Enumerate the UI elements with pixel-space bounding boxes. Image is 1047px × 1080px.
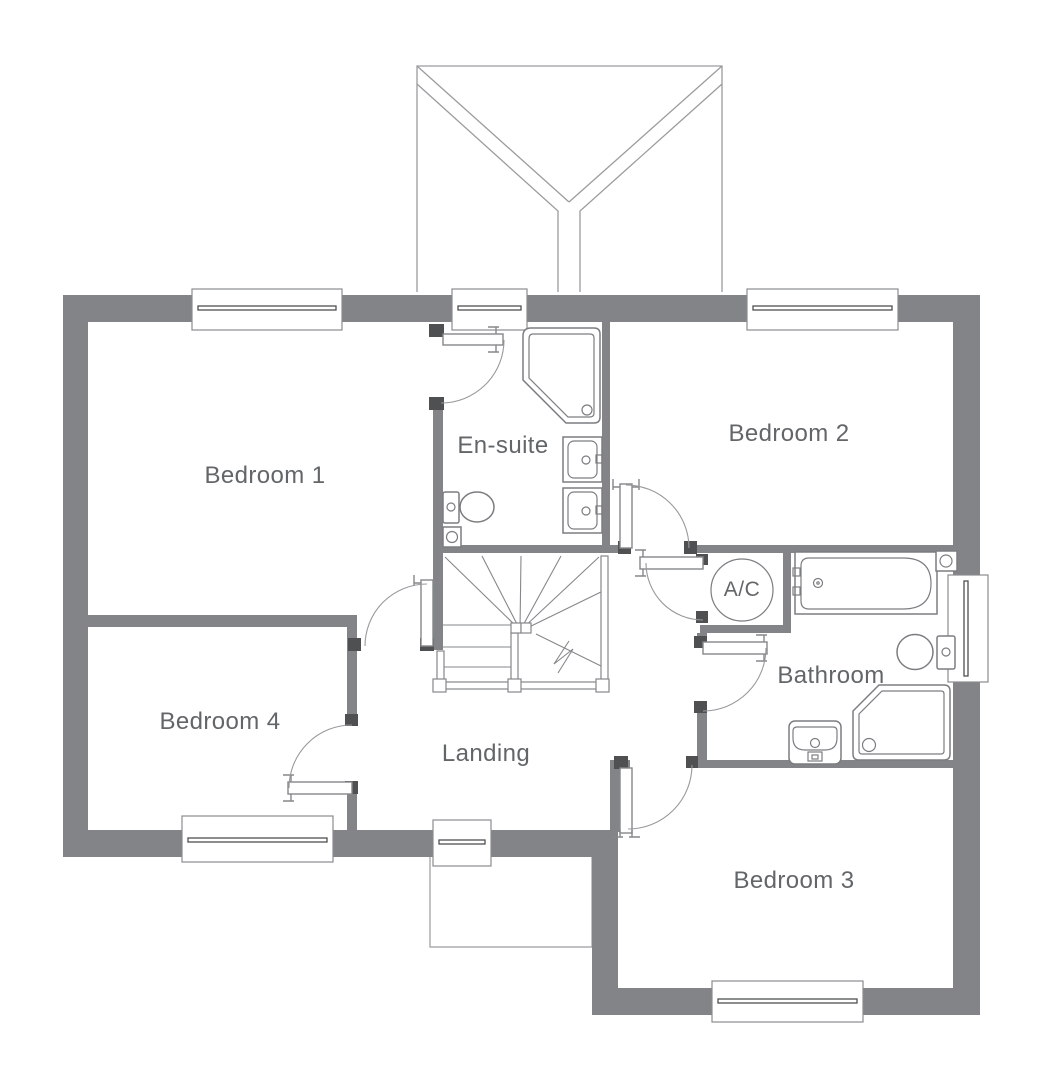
staircase	[433, 556, 609, 692]
door-ac-cupboard	[635, 550, 708, 623]
door-bathroom	[694, 635, 767, 713]
bathroom-corner-unit	[936, 551, 957, 571]
floor-plan-canvas	[0, 0, 1047, 1080]
room-label-ensuite: En-suite	[457, 432, 548, 460]
door-bedroom1	[348, 575, 440, 651]
room-label-bedroom-4: Bedroom 4	[160, 708, 281, 736]
room-label-bedroom-1: Bedroom 1	[205, 462, 326, 490]
bathroom-corner-shower	[853, 685, 950, 760]
door-bedroom2	[613, 479, 697, 554]
window-ensuite-top	[452, 289, 527, 330]
window-bedroom3-bottom	[712, 981, 863, 1022]
window-landing-bottom	[433, 820, 491, 866]
ensuite-sink-2	[563, 488, 602, 533]
ensuite-utility-box	[443, 527, 461, 547]
room-label-bedroom-2: Bedroom 2	[729, 420, 850, 448]
door-bedroom3	[612, 756, 698, 837]
room-label-landing: Landing	[442, 740, 530, 768]
ground-floor-outline	[430, 856, 592, 947]
window-bedroom2-top	[747, 289, 898, 330]
window-bedroom1-top	[192, 289, 342, 330]
bathroom-basin	[789, 721, 841, 764]
bathroom-toilet	[897, 635, 955, 670]
ensuite-sink-1	[563, 437, 602, 482]
room-label-bathroom: Bathroom	[777, 662, 884, 690]
room-label-ac: A/C	[724, 578, 761, 602]
floor-plan: Bedroom 1 En-suite Bedroom 2 Bedroom 4 L…	[0, 0, 1047, 1080]
door-ensuite	[429, 324, 504, 410]
ensuite-toilet	[443, 492, 494, 523]
window-bedroom4-bottom	[182, 816, 333, 862]
room-label-bedroom-3: Bedroom 3	[734, 867, 855, 895]
exterior-walls	[63, 295, 980, 1015]
bathroom-bath	[793, 552, 937, 614]
roof-outline	[417, 66, 722, 292]
door-bedroom4	[283, 714, 358, 801]
ensuite-shower	[523, 328, 600, 423]
